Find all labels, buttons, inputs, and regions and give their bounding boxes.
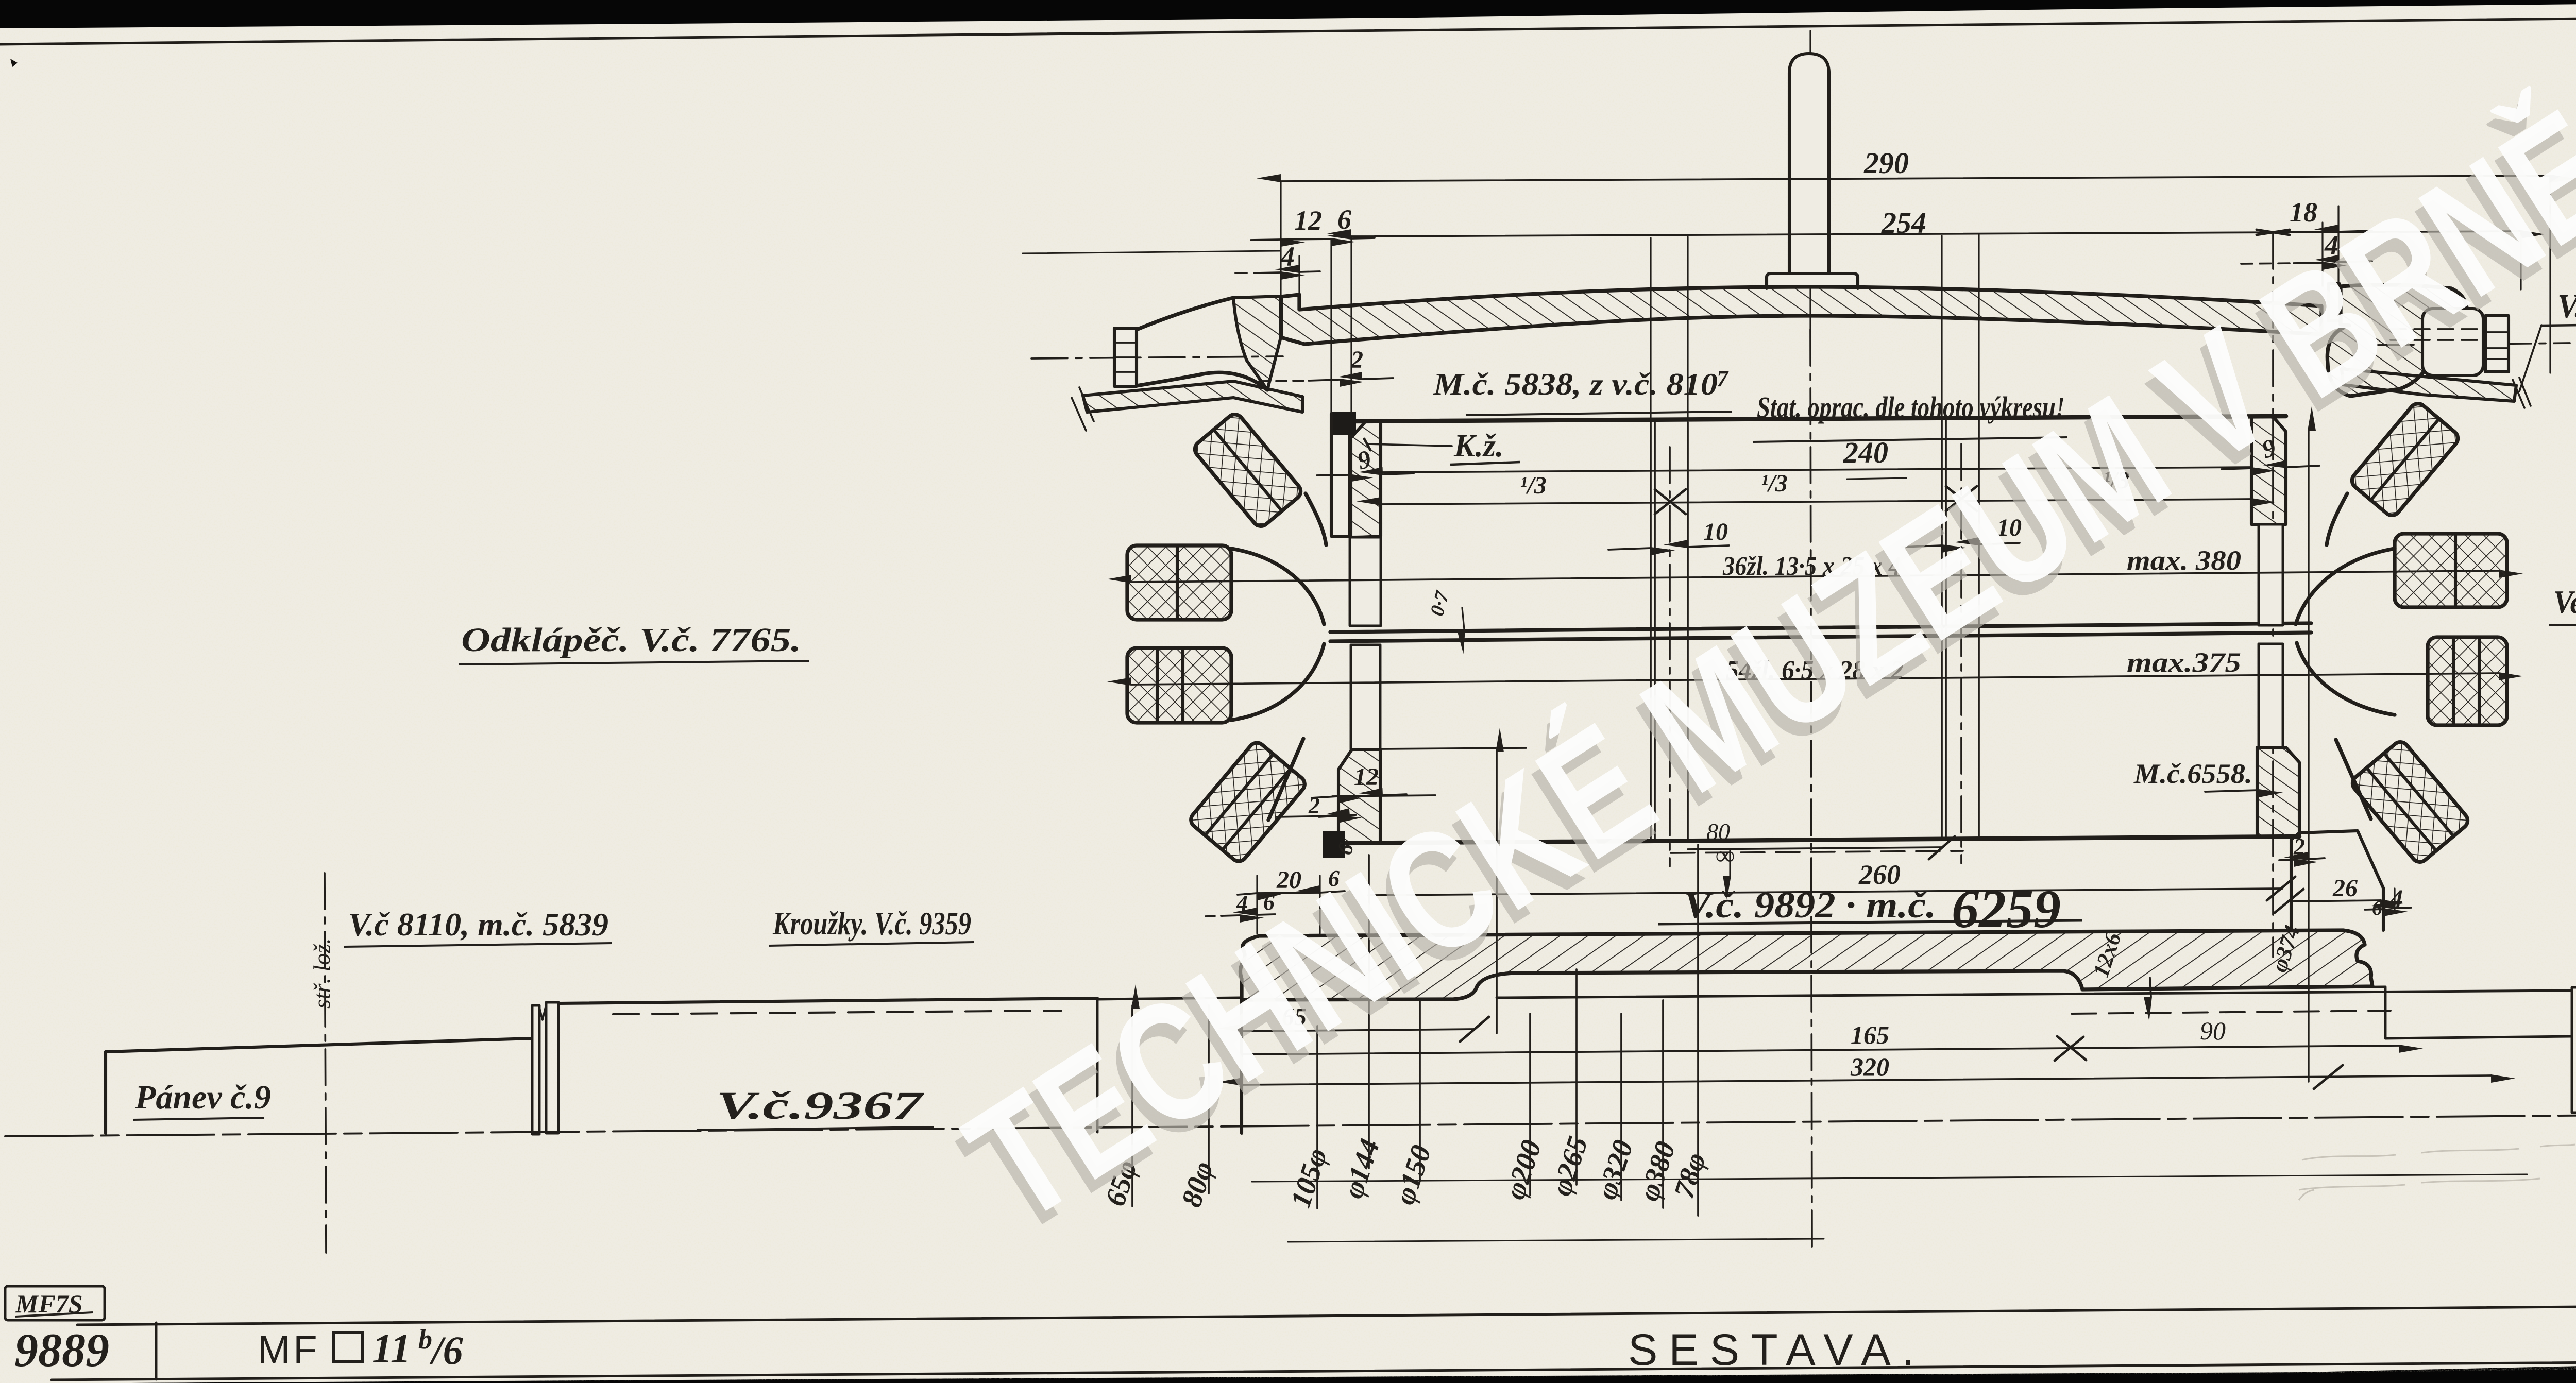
svg-text:4: 4: [2390, 885, 2403, 912]
svg-text:240: 240: [1843, 436, 1888, 469]
svg-text:90: 90: [2200, 1016, 2226, 1045]
svg-text:¹/3: ¹/3: [1761, 470, 1788, 497]
svg-text:254: 254: [1881, 206, 1926, 240]
svg-text:Kroužky. V.č. 9359: Kroužky. V.č. 9359: [772, 905, 971, 942]
svg-text:10: 10: [1703, 518, 1728, 545]
svg-text:MF: MF: [258, 1328, 320, 1372]
svg-text:2: 2: [2293, 834, 2305, 859]
svg-text:9889: 9889: [14, 1324, 109, 1376]
svg-text:7: 7: [1717, 366, 1729, 391]
svg-text:11: 11: [372, 1326, 411, 1372]
svg-text:12: 12: [1354, 763, 1379, 791]
svg-text:SESTAVA.: SESTAVA.: [1628, 1325, 1925, 1375]
svg-text:2: 2: [1350, 346, 1363, 373]
svg-text:6: 6: [2372, 896, 2382, 919]
svg-text:290: 290: [1863, 146, 1909, 180]
svg-text:Odklápěč. V.č. 7765.: Odklápěč. V.č. 7765.: [461, 621, 801, 659]
svg-text:26: 26: [2332, 875, 2358, 902]
svg-text:stř. lož.: stř. lož.: [309, 938, 335, 1009]
svg-text:M.č. 5838, z v.č. 810: M.č. 5838, z v.č. 810: [1433, 367, 1718, 401]
svg-text:260: 260: [1858, 859, 1901, 890]
svg-text:Pánev č.9: Pánev č.9: [134, 1079, 271, 1116]
svg-text:∞: ∞: [1716, 841, 1735, 870]
svg-text:6: 6: [1337, 204, 1351, 235]
svg-text:b: b: [418, 1324, 432, 1355]
svg-text:K.ž.: K.ž.: [1453, 429, 1503, 464]
svg-text:V.č.9367: V.č.9367: [716, 1084, 925, 1128]
svg-text:V.č 8110, m.č. 5839: V.č 8110, m.č. 5839: [348, 906, 608, 943]
svg-text:320: 320: [1850, 1052, 1889, 1081]
svg-text:Ventilátor. V.č. 9356.: Ventilátor. V.č. 9356.: [2553, 584, 2576, 620]
svg-text:M.č.6558.: M.č.6558.: [2133, 758, 2252, 789]
svg-text:12: 12: [1294, 205, 1322, 236]
svg-text:/6: /6: [429, 1328, 463, 1373]
svg-text:4: 4: [1280, 241, 1295, 272]
svg-text:6259: 6259: [1952, 879, 2061, 939]
svg-text:165: 165: [1851, 1020, 1889, 1049]
svg-text:2: 2: [1308, 793, 1320, 818]
svg-text:¹/3: ¹/3: [1520, 472, 1547, 499]
svg-text:V.č. 9892 · m.č.: V.č. 9892 · m.č.: [1684, 884, 1936, 926]
svg-text:max.375: max.375: [2127, 647, 2241, 678]
